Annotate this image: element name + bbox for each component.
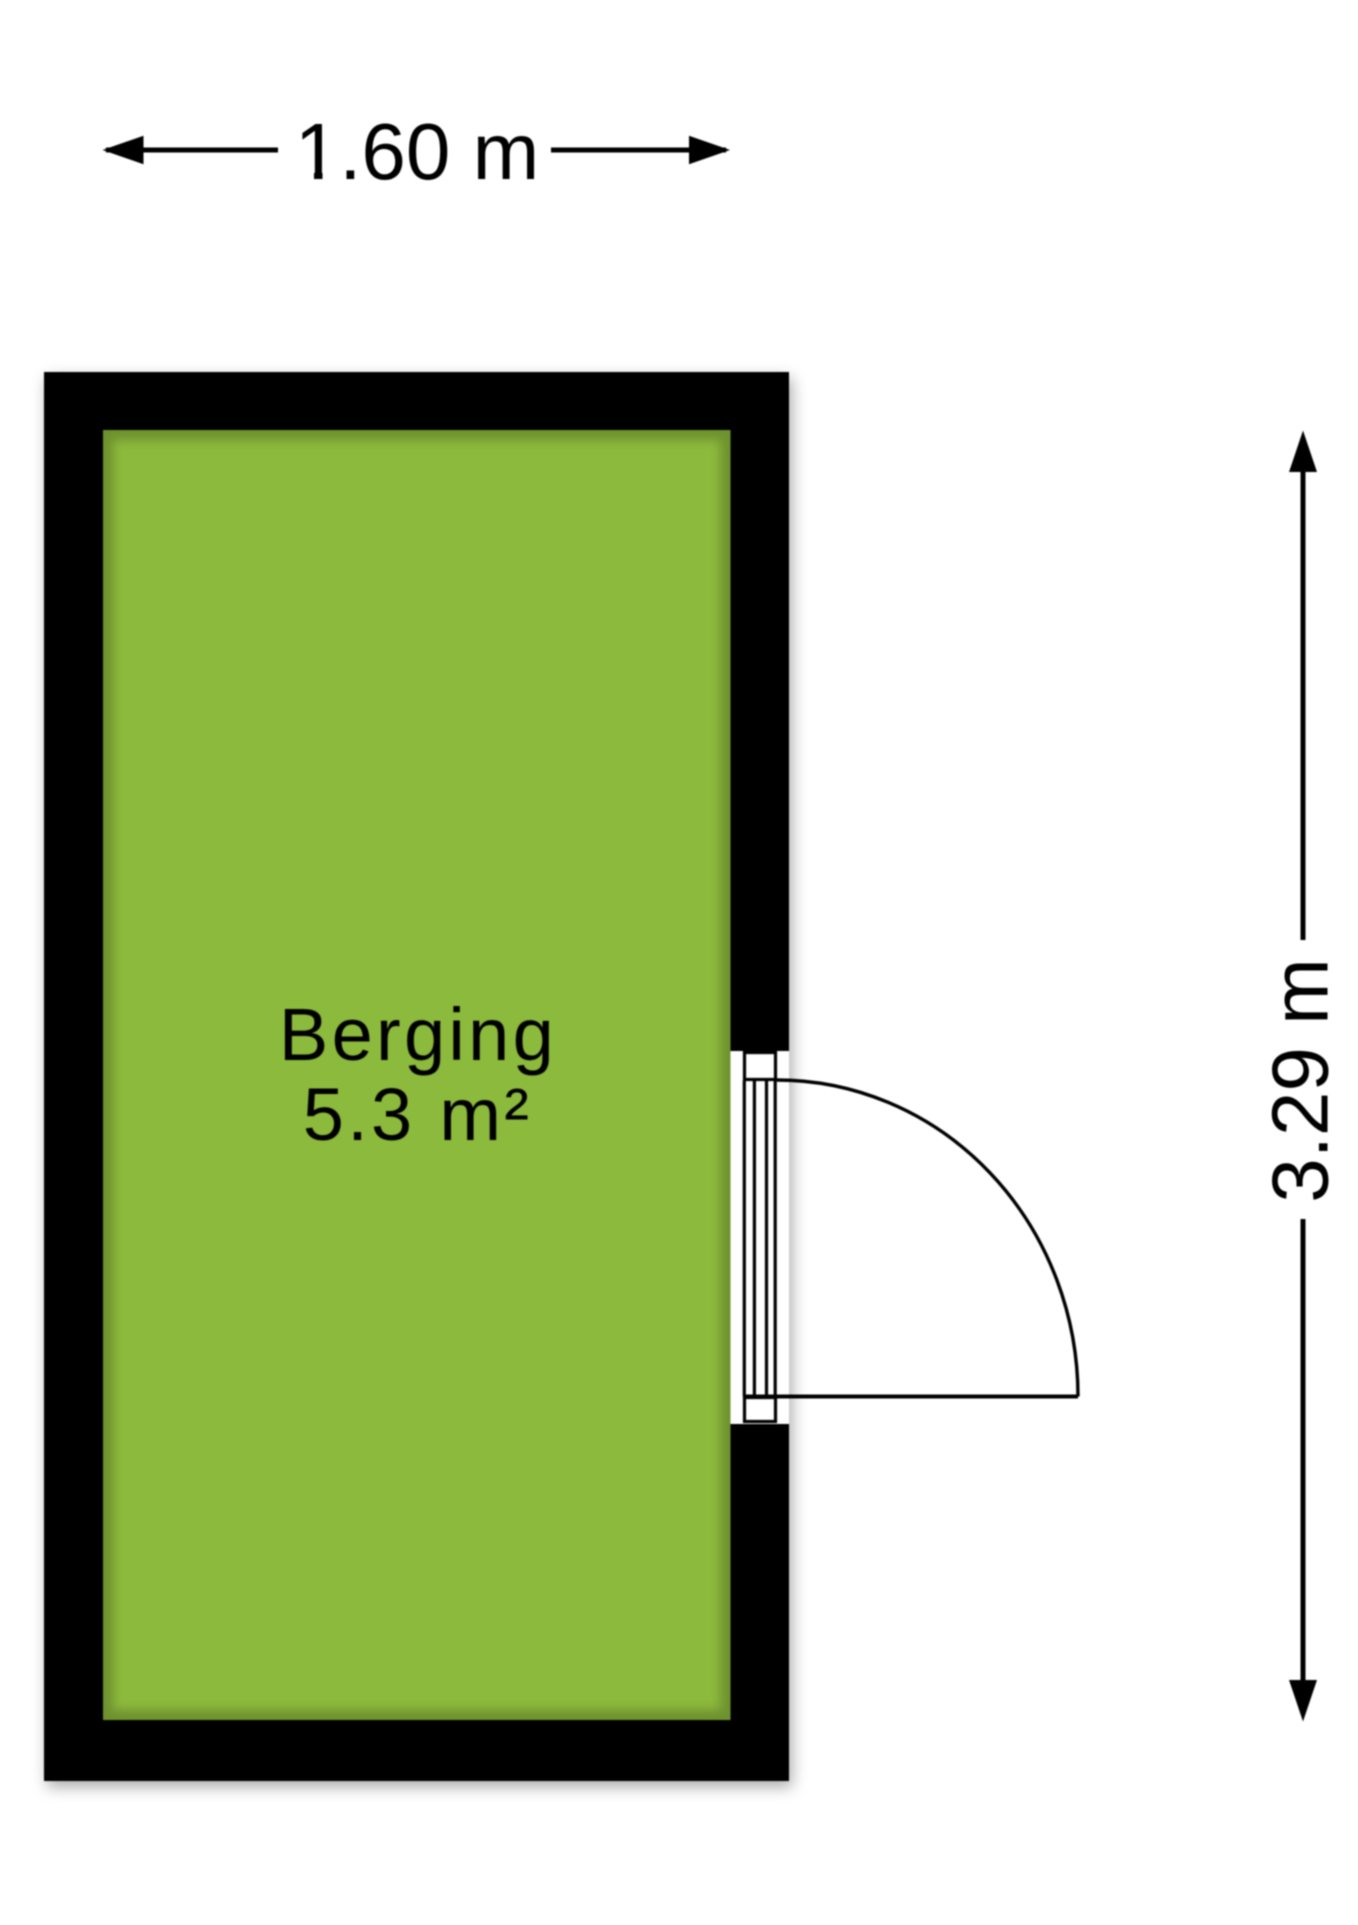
- svg-text:5.3 m²: 5.3 m²: [303, 1073, 533, 1156]
- svg-text:Berging: Berging: [279, 993, 557, 1076]
- svg-text:3.29 m: 3.29 m: [1256, 958, 1345, 1203]
- svg-text:1.60 m: 1.60 m: [295, 107, 540, 196]
